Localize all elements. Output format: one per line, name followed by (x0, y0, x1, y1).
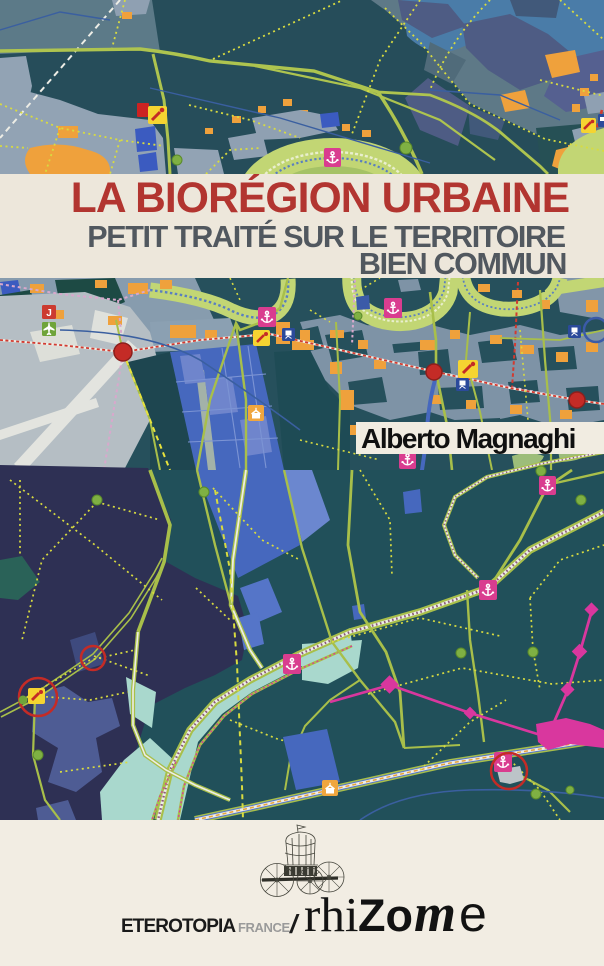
svg-text:FRANCE: FRANCE (238, 920, 290, 935)
svg-text:Alberto Magnaghi: Alberto Magnaghi (361, 423, 575, 454)
svg-text:rhi: rhi (304, 887, 358, 942)
svg-text:Zo: Zo (358, 890, 413, 941)
svg-text:BIEN COMMUN: BIEN COMMUN (359, 247, 566, 281)
svg-text:LA BIORÉGION URBAINE: LA BIORÉGION URBAINE (71, 174, 570, 222)
svg-text:m: m (414, 883, 456, 943)
svg-text:ETEROTOPIA: ETEROTOPIA (121, 916, 236, 937)
svg-text:e: e (459, 886, 487, 942)
svg-text:J: J (46, 308, 52, 319)
